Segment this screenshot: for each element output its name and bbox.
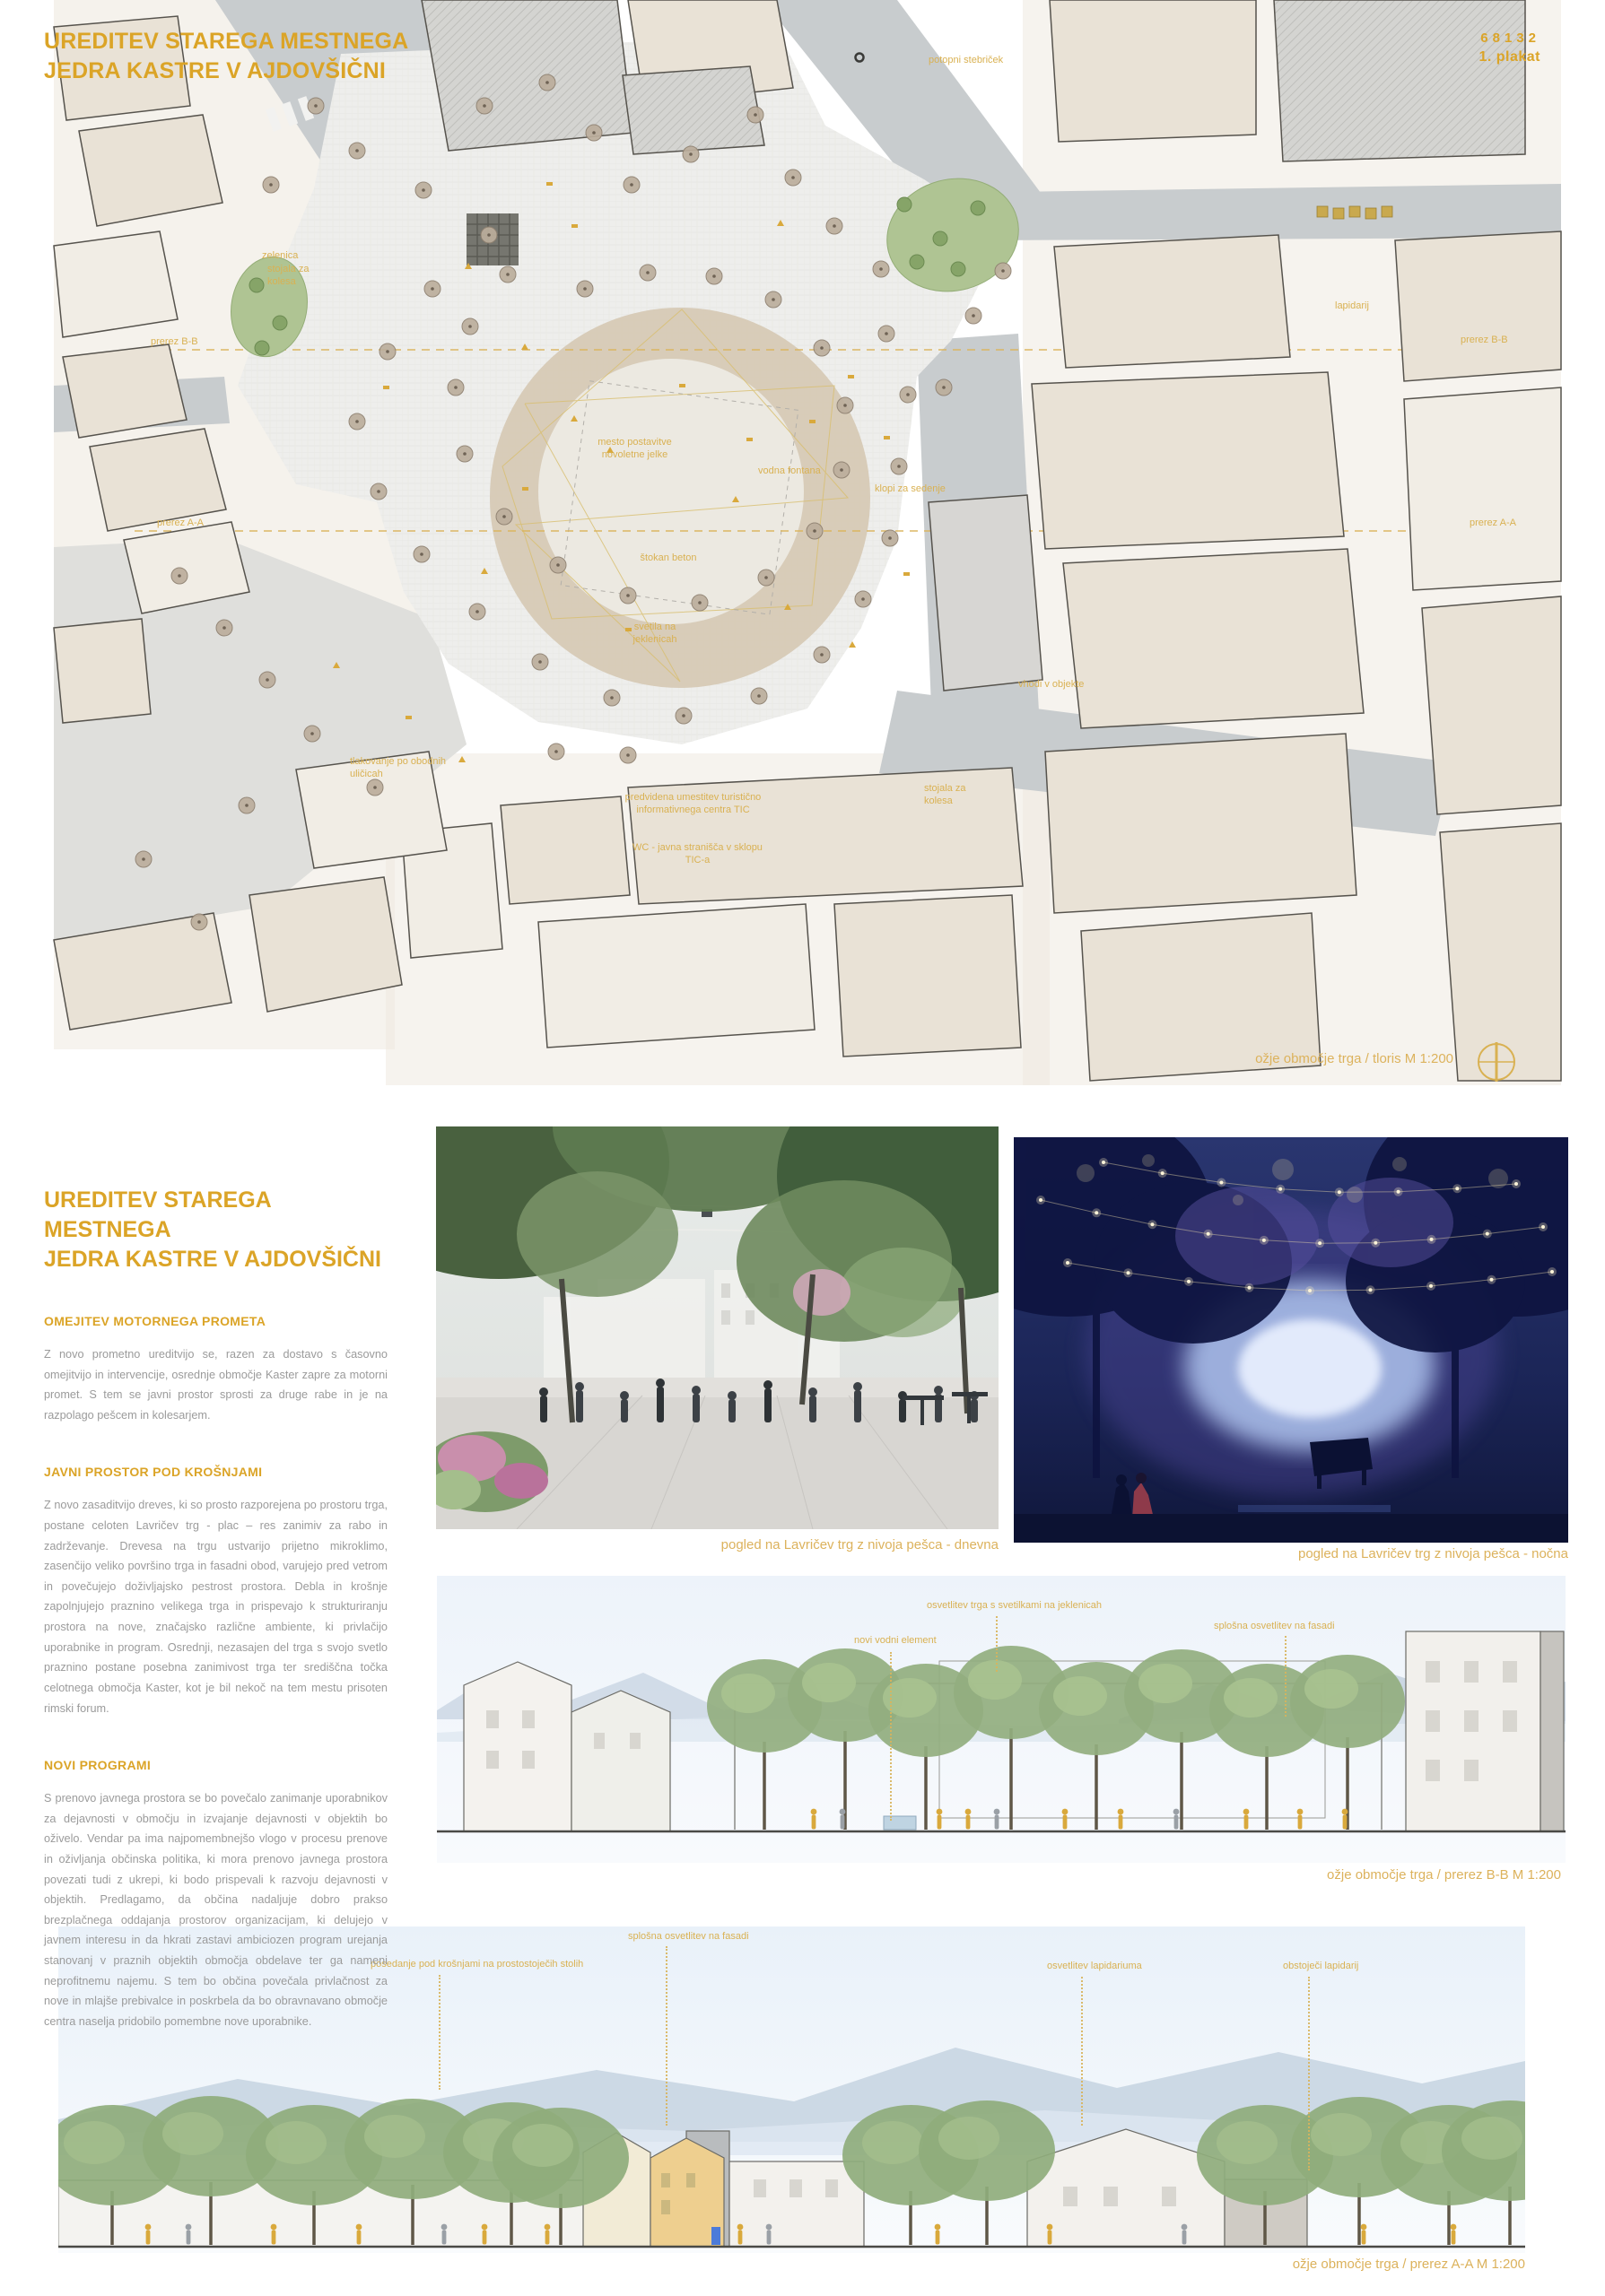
site-plan-drawing [0,0,1605,1090]
article-title-line2: JEDRA KASTRE V AJDOVŠIČNI [44,1245,388,1274]
leader-line [996,1616,998,1672]
day-render-caption: pogled na Lavričev trg z nivoja pešca - … [436,1537,999,1552]
article-title: UREDITEV STAREGA MESTNEGA JEDRA KASTRE V… [44,1186,388,1274]
plan-label: lapidarij [1335,300,1369,312]
article-heading-1: OMEJITEV MOTORNEGA PROMETA [44,1314,388,1328]
plan-label: svetila na jeklenicah [619,621,691,647]
board-title-line2: JEDRA KASTRE V AJDOVŠIČNI [44,57,408,86]
section-bb-caption: ožje območje trga / prerez B-B M 1:200 [1256,1867,1561,1883]
plan-label: predvidena umestitev turistično informat… [592,791,794,817]
leader-line [1308,1977,1310,2170]
section-bb-label: novi vodni element [854,1634,937,1647]
article-column: UREDITEV STAREGA MESTNEGA JEDRA KASTRE V… [44,1186,388,2031]
plan-label: zelenica [262,249,298,262]
leader-line [439,1975,441,2090]
plan-label: WC - javna stranišča v sklopu TIC-a [632,841,763,867]
plan-label: potopni stebriček [929,54,1003,66]
leader-line [1081,1977,1083,2126]
article-heading-3: NOVI PROGRAMI [44,1758,388,1772]
article-title-line1: UREDITEV STAREGA MESTNEGA [44,1186,388,1245]
plan-label: stojala za kolesa [267,263,332,289]
night-render-image [1014,1137,1568,1543]
section-aa-caption: ožje območje trga / prerez A-A M 1:200 [1220,2257,1525,2272]
board-number-block: 68132 1. plakat [1479,30,1540,65]
section-bb-label: splošna osvetlitev na fasadi [1214,1620,1335,1632]
plan-label: prerez B-B [151,335,198,348]
leader-line [666,1946,667,2126]
board-title: UREDITEV STAREGA MESTNEGA JEDRA KASTRE V… [44,27,408,86]
section-aa-label: posedanje pod krošnjami na prostostoječi… [371,1958,583,1970]
plan-label: štokan beton [637,552,700,564]
plan-label: prerez A-A [1470,517,1516,529]
board-number: 68132 [1479,30,1540,46]
section-bb-art [437,1576,1566,1863]
section-aa-label: osvetlitev lapidariuma [1047,1960,1142,1972]
board-plakat-label: 1. plakat [1479,49,1540,65]
plan-label: vhodi v objekte [1018,678,1084,691]
plan-label: mesto postavitve novoletne jelke [592,436,677,462]
article-paragraph-3: S prenovo javnega prostora se bo povečal… [44,1788,388,2031]
plan-label: prerez A-A [157,517,204,529]
section-aa-label: obstoječi lapidarij [1283,1960,1358,1972]
section-bb-drawing [437,1576,1566,1863]
plan-label: klopi za sedenje [875,483,946,495]
north-arrow-icon [1473,1039,1520,1085]
plan-label: tlakovanje po obodnih uličicah [350,755,462,781]
leader-line [890,1652,892,1821]
section-bb-label: osvetlitev trga s svetilkami na jeklenic… [927,1599,1102,1612]
plan-label: vodna fontana [758,465,821,477]
day-render-art [436,1126,999,1529]
presentation-board: { "page": { "board_number": "68132", "bo… [0,0,1605,2296]
article-heading-2: JAVNI PROSTOR POD KROŠNJAMI [44,1465,388,1479]
plan-label: stojala za kolesa [924,782,996,808]
article-paragraph-1: Z novo prometno ureditvijo se, razen za … [44,1344,388,1425]
leader-line [1285,1636,1287,1717]
article-paragraph-2: Z novo zasaditvijo dreves, ki so prosto … [44,1495,388,1718]
night-render-caption: pogled na Lavričev trg z nivoja pešca - … [1014,1546,1568,1561]
day-render-image [436,1126,999,1529]
plan-label: prerez B-B [1461,334,1508,346]
night-render-art [1014,1137,1568,1543]
section-aa-label: splošna osvetlitev na fasadi [628,1930,749,1943]
board-title-line1: UREDITEV STAREGA MESTNEGA [44,27,408,57]
plan-caption: ožje območje trga / tloris M 1:200 [1193,1051,1453,1066]
